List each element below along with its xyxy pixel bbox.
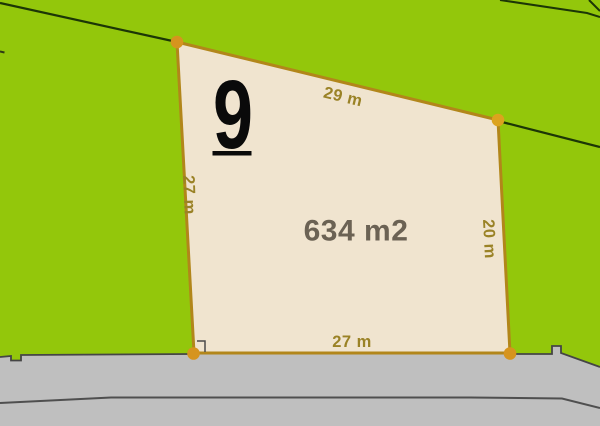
vertex-marker-top-left	[171, 36, 184, 49]
area-label: 634 m2	[304, 215, 409, 248]
map-canvas: 29 m 27 m 20 m 27 m 634 m2 9	[0, 0, 600, 426]
boundary-tick-left-edge	[0, 52, 5, 53]
vertex-marker-top-right	[492, 114, 505, 127]
vertex-marker-bottom-right	[504, 347, 517, 360]
vertex-marker-bottom-left	[187, 347, 200, 360]
dimension-label-bottom: 27 m	[332, 333, 372, 351]
dimension-label-left: 27 m	[179, 175, 198, 215]
plot-number-underline	[213, 151, 252, 156]
cadastral-map: 29 m 27 m 20 m 27 m 634 m2 9	[0, 0, 600, 426]
dimension-label-right: 20 m	[479, 219, 499, 259]
